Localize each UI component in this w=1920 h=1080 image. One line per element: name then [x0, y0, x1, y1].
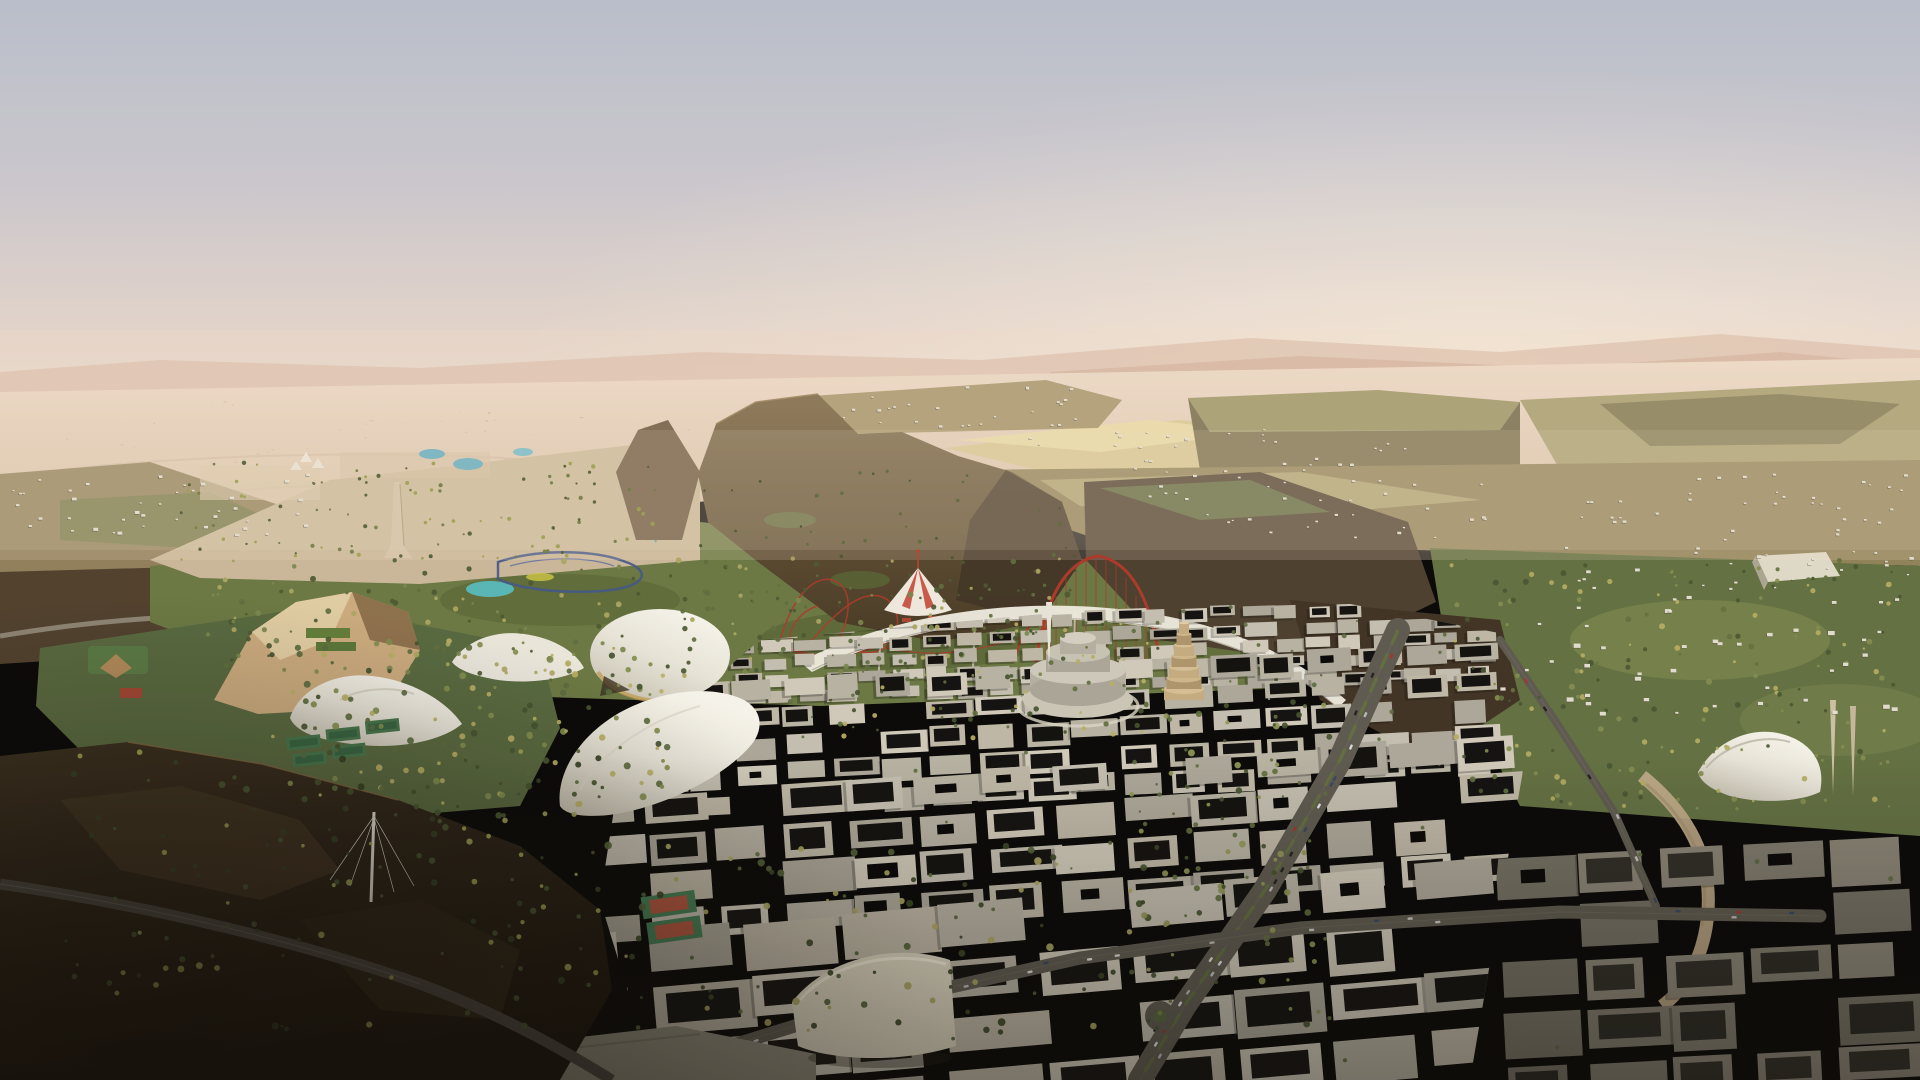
warm-tone-overlay [0, 0, 1920, 1080]
scene-canvas [0, 0, 1920, 1080]
aerial-render [0, 0, 1920, 1080]
